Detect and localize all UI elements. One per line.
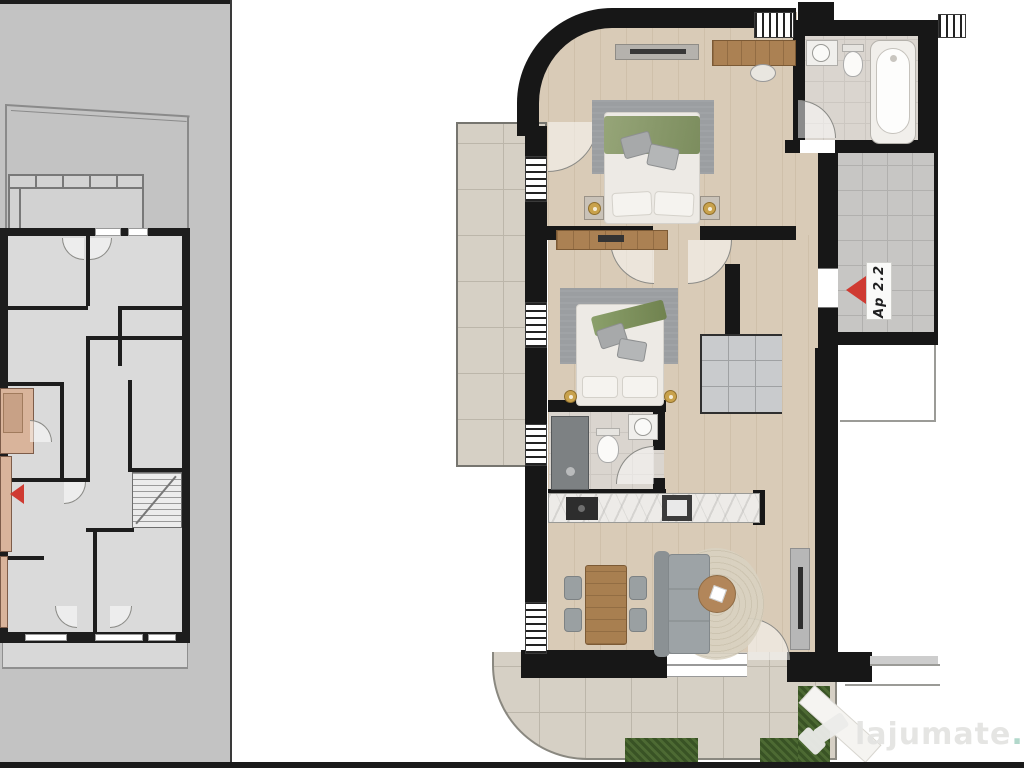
apartment-label-text: Ap 2.2 (872, 265, 887, 318)
dining-chair (629, 608, 647, 632)
watermark: lajumate.ro (800, 712, 1024, 756)
apartment-label: Ap 2.2 (866, 262, 892, 320)
tv-screen (630, 49, 686, 54)
overview-inner-wall (8, 382, 64, 386)
overview-inner-wall (8, 556, 44, 560)
hedge-planter (625, 738, 698, 762)
window-radiator (525, 602, 547, 654)
stair-diagonal (135, 476, 176, 525)
neighbor-outline-line (934, 345, 936, 422)
neighbor-outline-line (870, 664, 940, 666)
window-radiator (938, 14, 966, 38)
bed-pillow (582, 376, 618, 398)
entrance-arrow-icon (10, 484, 24, 504)
tv-screen (798, 567, 803, 629)
apartment-wall-right-upper (818, 150, 838, 268)
panel-divider (230, 0, 232, 763)
sink-basin (812, 44, 830, 62)
shower (551, 416, 589, 490)
window-radiator (525, 424, 547, 466)
overview-inner-wall (93, 528, 97, 632)
dining-chair (564, 608, 582, 632)
overview-inner-wall (86, 340, 90, 480)
bathroom1-door-gap (800, 140, 835, 153)
cooktop-burner (578, 505, 585, 512)
kitchen-sink-unit (662, 495, 692, 521)
bed-pillow (653, 191, 694, 217)
overview-inner-wall (60, 382, 64, 480)
sliding-door-rail (667, 664, 747, 666)
sink (806, 40, 838, 66)
apartment-wall-right-lower (815, 348, 838, 658)
overview-window (25, 634, 67, 641)
window-wall-left (525, 126, 547, 658)
bottom-border (0, 762, 1024, 768)
dining-chair (564, 576, 582, 600)
overview-staircase (132, 472, 182, 528)
coffee-table (698, 575, 736, 613)
bed-pillow (622, 376, 658, 398)
bedside-lamp (703, 202, 716, 215)
bathroom1-wall-bottom (785, 140, 800, 153)
overview-window (148, 634, 176, 641)
toilet (843, 51, 863, 77)
wardrobe-closet (700, 334, 782, 414)
neighbor-wall-slab (870, 656, 938, 664)
window-radiator (525, 156, 547, 202)
toilet (597, 435, 619, 463)
hallway-wall-right (934, 150, 938, 345)
highlighted-apartment-strip (0, 456, 12, 552)
overview-window (95, 228, 121, 236)
apartment-wall-right-mid (818, 308, 838, 348)
sink (628, 414, 658, 440)
brand-logo-icon (800, 712, 850, 756)
neighbor-outline-line (840, 420, 936, 422)
wall-notch (798, 2, 834, 22)
sink-basin (634, 418, 652, 436)
floorplan-image: Ap 2.2 (0, 0, 1024, 768)
overview-inner-wall (120, 306, 182, 310)
overview-window (128, 228, 148, 236)
sideboard-item (598, 235, 624, 242)
garage-side-strip (10, 187, 21, 228)
neighbor-outline-line (845, 684, 940, 686)
desk-chair (750, 64, 776, 82)
corridor-floor (795, 140, 819, 240)
highlighted-room-furniture (3, 393, 23, 433)
bathroom1-wall-top (790, 20, 938, 36)
entrance-arrow-icon (846, 276, 866, 304)
building-overview-panel (0, 0, 230, 763)
bathroom1-wall-right (918, 26, 938, 152)
watermark-tld: .ro (1011, 717, 1024, 752)
entrance-door-gap (818, 268, 838, 308)
window-radiator (754, 12, 794, 38)
coffee-table-decor (709, 585, 727, 603)
garage-fence-row (10, 176, 142, 189)
shower-drain (566, 467, 575, 476)
highlighted-apartment-strip (0, 556, 8, 628)
courtyard-outline-right (187, 117, 189, 230)
kitchen-sink-basin (667, 500, 687, 516)
bedside-lamp (664, 390, 677, 403)
overview-inner-wall (8, 306, 88, 310)
overview-inner-wall (86, 336, 182, 340)
bathtub (870, 40, 916, 144)
desk (712, 40, 796, 66)
cooktop (566, 497, 598, 520)
bed-pillow (611, 191, 652, 217)
bedroom1-wall-bottom (700, 226, 796, 240)
overview-inner-wall (128, 380, 132, 472)
highlighted-apartment-room (0, 388, 34, 454)
bathtub-drain (890, 55, 897, 62)
watermark-brand: lajumate (855, 717, 1011, 752)
exterior-wall-bottom-right (787, 652, 872, 682)
watermark-text: lajumate.ro (855, 717, 1024, 752)
bedside-lamp (564, 390, 577, 403)
dining-table (585, 565, 627, 645)
dining-chair (629, 576, 647, 600)
overview-garage-block (8, 174, 144, 230)
overview-wall-right (182, 228, 190, 643)
overview-window (95, 634, 143, 641)
bedside-lamp (588, 202, 601, 215)
courtyard-outline-left (5, 104, 7, 230)
overview-top-border (0, 0, 230, 4)
hallway-wall-bottom (838, 332, 938, 345)
overview-balcony (2, 643, 188, 669)
window-radiator (525, 302, 547, 348)
tv-panel (790, 548, 810, 650)
